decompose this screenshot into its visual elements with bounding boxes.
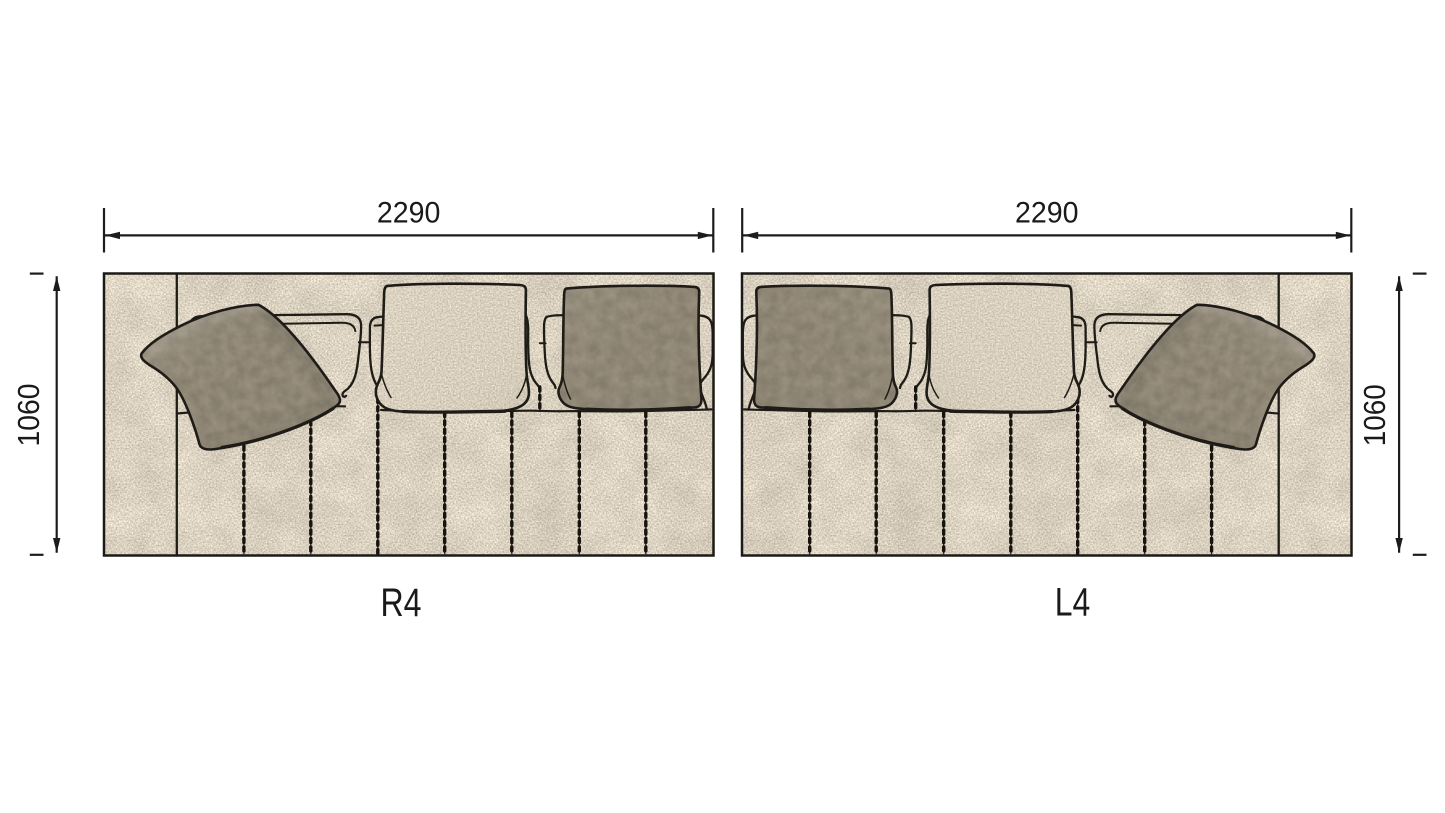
svg-text:1060: 1060 bbox=[11, 384, 46, 447]
svg-text:L4: L4 bbox=[1055, 581, 1091, 625]
svg-text:2290: 2290 bbox=[1015, 197, 1079, 230]
svg-text:R4: R4 bbox=[381, 581, 422, 625]
svg-text:2290: 2290 bbox=[377, 197, 441, 230]
svg-text:1060: 1060 bbox=[1357, 384, 1392, 446]
